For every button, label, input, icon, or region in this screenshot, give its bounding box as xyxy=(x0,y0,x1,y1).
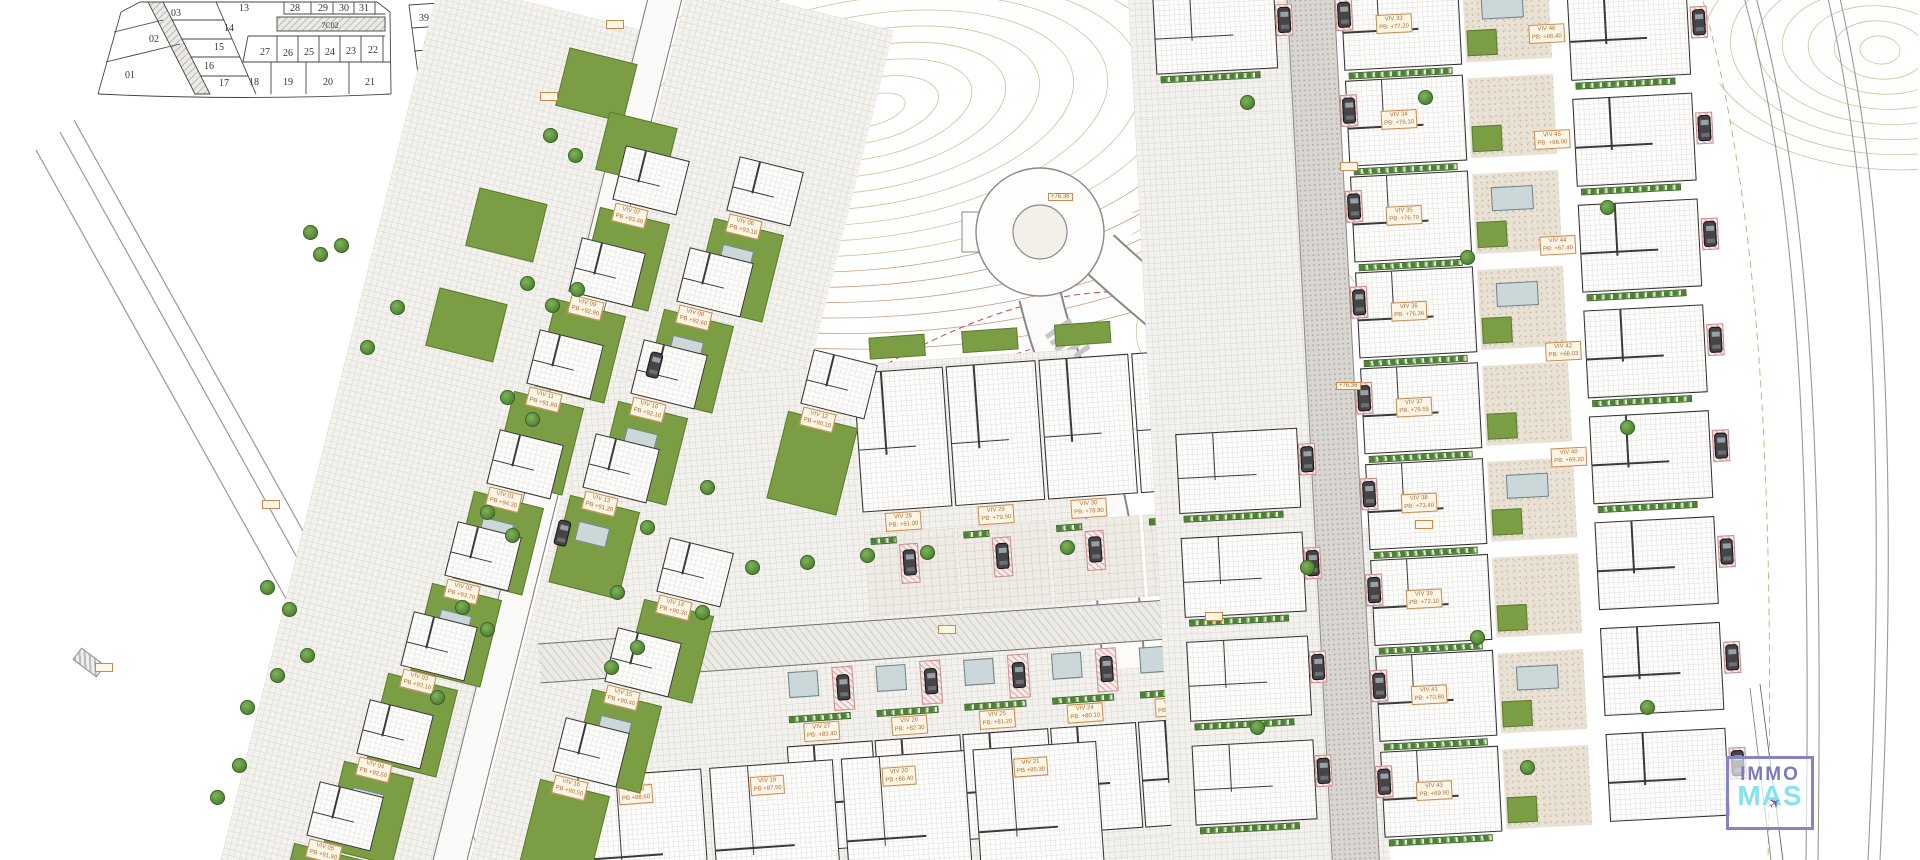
tree-icon xyxy=(480,622,495,637)
tree-icon xyxy=(1460,250,1475,265)
tree-icon xyxy=(455,600,470,615)
tree-icon xyxy=(543,128,558,143)
reference-tag xyxy=(1415,520,1433,529)
tree-icon xyxy=(568,148,583,163)
tree-icon xyxy=(1520,760,1535,775)
tree-icon xyxy=(1300,560,1315,575)
tree-icon xyxy=(240,700,255,715)
tree-icon xyxy=(303,225,318,240)
tree-icon xyxy=(232,758,247,773)
tree-icon xyxy=(604,660,619,675)
tree-icon xyxy=(1470,630,1485,645)
parked-car-icon xyxy=(645,351,664,379)
tree-icon xyxy=(800,555,815,570)
reference-tag xyxy=(540,92,558,101)
tree-icon xyxy=(610,585,625,600)
tree-icon xyxy=(313,247,328,262)
parked-car-icon xyxy=(553,519,572,547)
tree-icon xyxy=(860,548,875,563)
tree-icon xyxy=(1640,700,1655,715)
reference-tag xyxy=(606,20,624,29)
tree-icon xyxy=(210,790,225,805)
tree-icon xyxy=(1250,720,1265,735)
tree-icon xyxy=(1240,95,1255,110)
tree-icon xyxy=(260,580,275,595)
reference-tag xyxy=(262,500,280,509)
tree-icon xyxy=(695,605,710,620)
tree-icon xyxy=(334,238,349,253)
elevation-tag: +76.36 xyxy=(1336,382,1361,390)
tree-icon xyxy=(1060,540,1075,555)
reference-tag xyxy=(938,625,956,634)
reference-tag xyxy=(1340,162,1358,171)
tree-icon xyxy=(270,668,285,683)
elevation-tag: +76.36 xyxy=(1048,193,1073,201)
landscape-decoration xyxy=(0,0,1920,860)
tree-icon xyxy=(920,545,935,560)
tree-icon xyxy=(640,520,655,535)
tree-icon xyxy=(1600,200,1615,215)
tree-icon xyxy=(1620,420,1635,435)
site-plan-page: 0102031314151617181920212726252423222829… xyxy=(0,0,1920,860)
tree-icon xyxy=(700,480,715,495)
tree-icon xyxy=(630,640,645,655)
tree-icon xyxy=(525,412,540,427)
tree-icon xyxy=(282,602,297,617)
tree-icon xyxy=(745,560,760,575)
tree-icon xyxy=(390,300,405,315)
tree-icon xyxy=(545,298,560,313)
reference-tag xyxy=(1205,612,1223,621)
tree-icon xyxy=(500,390,515,405)
tree-icon xyxy=(430,690,445,705)
tree-icon xyxy=(480,505,495,520)
tree-icon xyxy=(570,282,585,297)
immo-mas-logo: IMMO MAS ✈ xyxy=(1726,756,1814,830)
reference-tag xyxy=(95,663,113,672)
tree-icon xyxy=(360,340,375,355)
tree-icon xyxy=(300,648,315,663)
tree-icon xyxy=(520,276,535,291)
tree-icon xyxy=(505,528,520,543)
tree-icon xyxy=(1418,90,1433,105)
